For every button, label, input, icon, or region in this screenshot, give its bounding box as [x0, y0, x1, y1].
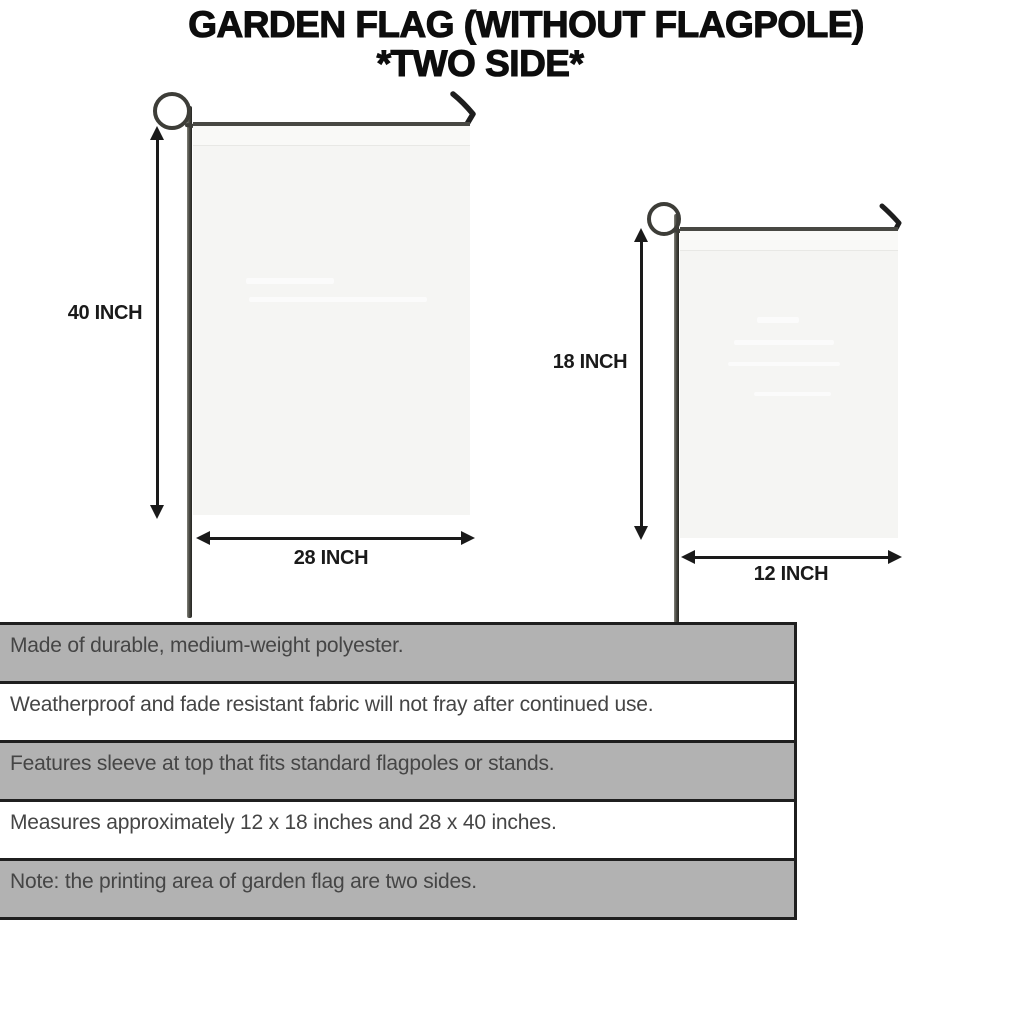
- small-flag-sleeve: [680, 231, 898, 251]
- feature-row: Note: the printing area of garden flag a…: [0, 861, 794, 917]
- large-flag-ghost-mark: [246, 278, 334, 284]
- feature-row: Weatherproof and fade resistant fabric w…: [0, 684, 794, 743]
- small-height-arrow-shaft: [640, 240, 643, 528]
- large-flag-sleeve: [193, 126, 470, 146]
- small-flag-ghost-mark: [728, 362, 840, 366]
- large-flag-panel: [193, 122, 470, 515]
- small-height-label: 18 INCH: [530, 351, 650, 374]
- large-height-arrow-down-head: [150, 505, 164, 519]
- small-flag-panel: [680, 227, 898, 538]
- small-width-arrow-right-head: [888, 550, 902, 564]
- small-flag-ghost-mark: [734, 340, 834, 345]
- features-table: Made of durable, medium-weight polyester…: [0, 622, 797, 920]
- large-flag-pole: [187, 106, 192, 618]
- small-width-label: 12 INCH: [731, 563, 851, 586]
- large-width-arrow-shaft: [208, 537, 462, 540]
- page-title-line-2: *TWO SIDE*: [0, 43, 992, 85]
- large-width-arrow-right-head: [461, 531, 475, 545]
- large-flag-ghost-mark: [249, 297, 427, 302]
- page-title-line-1: GARDEN FLAG (WITHOUT FLAGPOLE): [14, 4, 1024, 46]
- garden-flag-size-diagram: GARDEN FLAG (WITHOUT FLAGPOLE) *TWO SIDE…: [0, 0, 1024, 1024]
- small-width-arrow-shaft: [693, 556, 889, 559]
- small-flag-ghost-mark: [757, 317, 799, 323]
- large-width-label: 28 INCH: [271, 547, 391, 570]
- feature-row: Features sleeve at top that fits standar…: [0, 743, 794, 802]
- feature-row: Made of durable, medium-weight polyester…: [0, 625, 794, 684]
- feature-row: Measures approximately 12 x 18 inches an…: [0, 802, 794, 861]
- small-flag-ghost-mark: [754, 392, 831, 396]
- small-height-arrow-down-head: [634, 526, 648, 540]
- large-height-label: 40 INCH: [45, 302, 165, 325]
- small-flag-pole: [674, 214, 679, 623]
